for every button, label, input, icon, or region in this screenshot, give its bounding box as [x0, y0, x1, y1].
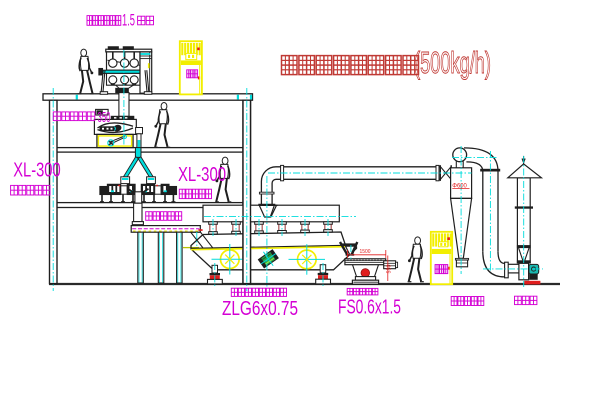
- svg-text:1500: 1500: [360, 249, 371, 255]
- svg-text:FS0.6x1.5: FS0.6x1.5: [338, 295, 401, 318]
- svg-text:350: 350: [98, 109, 111, 126]
- svg-text:ZLG6x0.75: ZLG6x0.75: [222, 297, 298, 320]
- svg-text:(500kg/h): (500kg/h): [414, 45, 491, 80]
- svg-text:XL-300: XL-300: [13, 159, 61, 181]
- svg-text:1.5: 1.5: [122, 10, 135, 29]
- svg-text:XL-300: XL-300: [178, 164, 226, 186]
- svg-text:550: 550: [387, 265, 393, 274]
